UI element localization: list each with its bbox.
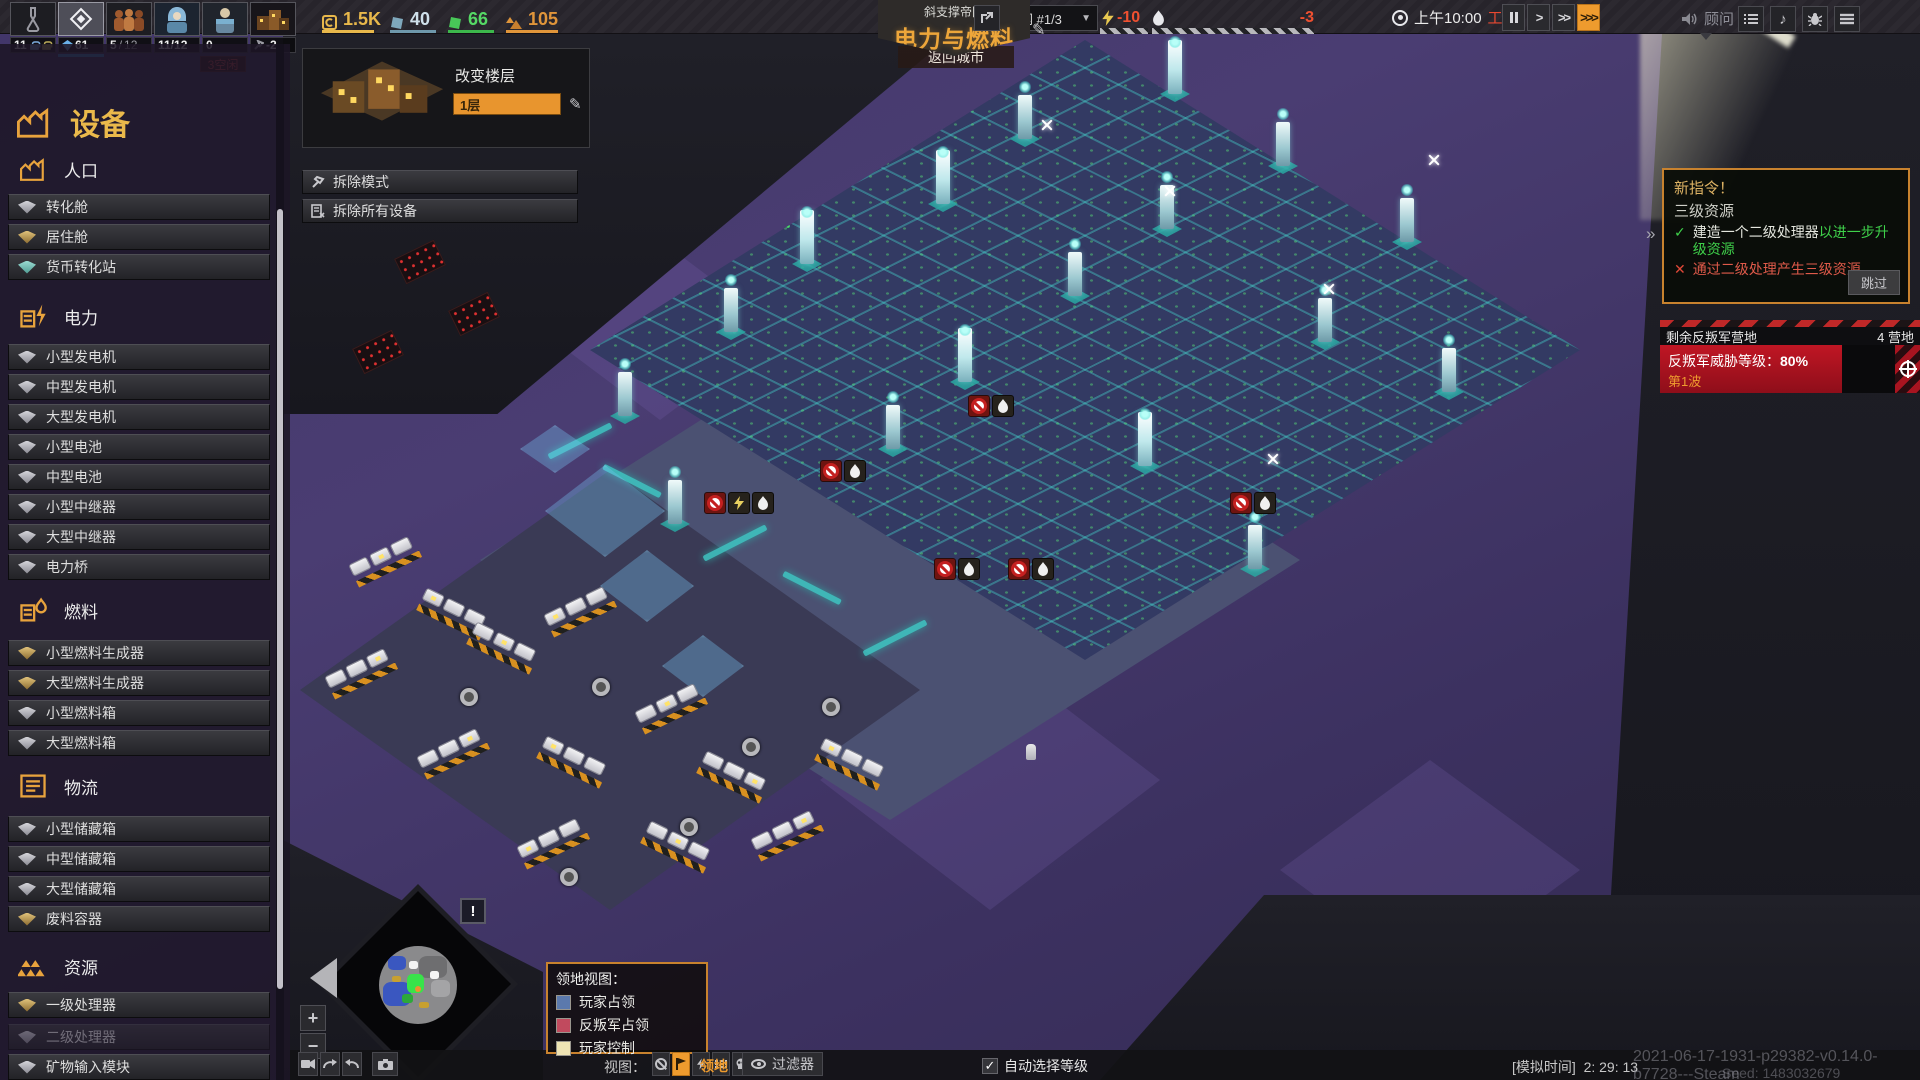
alert-button[interactable]: ! (460, 898, 486, 924)
threat-meter: 反叛军威胁等级：80% 第1波 (1660, 345, 1920, 393)
worker-sprite (1026, 744, 1036, 760)
build-item[interactable]: 中型储藏箱 (8, 846, 270, 872)
power-tower (950, 328, 980, 390)
sim-time: [模拟时间] 2: 29: 13 (1512, 1057, 1638, 1077)
no-power-icon (1008, 558, 1030, 580)
housing-slot[interactable] (154, 2, 200, 36)
directive-subject: 三级资源 (1674, 200, 1898, 221)
fuel-icon (992, 395, 1014, 417)
rebel-camps-title: 剩余反叛军营地 (1666, 327, 1757, 346)
build-item[interactable]: 货币转化站 (8, 254, 270, 280)
equipment-icon (14, 105, 54, 139)
directive-header: 新指令！ (1674, 177, 1898, 198)
resources-icon (18, 955, 48, 979)
build-item[interactable]: 一级处理器 (8, 992, 270, 1018)
legend-title: 领地视图： (556, 969, 698, 989)
section-resources: 资源 (18, 954, 98, 979)
skip-button[interactable]: 跳过 (1848, 270, 1900, 295)
demolish-all-button[interactable]: 拆除所有设备 (302, 199, 578, 223)
green-underline (448, 30, 494, 33)
build-item[interactable]: 小型中继器 (8, 494, 270, 520)
power-deficit-stripes (1100, 28, 1148, 34)
equipment-header: 设备 (14, 100, 130, 144)
speed-2-button[interactable]: >> (1552, 4, 1575, 31)
resource-minerals[interactable]: 105 (506, 4, 558, 30)
auto-select-level[interactable]: ✓ 自动选择等级 (982, 1056, 1088, 1076)
blue-crystal-icon (390, 16, 404, 30)
fuel-warning[interactable] (704, 492, 774, 514)
wheel (460, 688, 478, 706)
zoom-in-button[interactable]: + (300, 1005, 326, 1031)
build-item[interactable]: 转化舱 (8, 194, 270, 220)
fuel-warning[interactable] (820, 460, 866, 482)
advisor-button[interactable]: 顾问 (1682, 8, 1734, 29)
legend-player-claim: 玩家占领 (556, 992, 698, 1012)
speed-3-button[interactable]: >>> (1577, 4, 1600, 31)
rebel-camps-panel: 剩余反叛军营地 4 营地 反叛军威胁等级：80% 第1波 (1660, 320, 1920, 393)
fuel-warning[interactable] (1008, 558, 1054, 580)
power-tower (1060, 242, 1090, 304)
camera-mode-button[interactable] (298, 1052, 318, 1076)
build-item[interactable]: 大型燃料箱 (8, 730, 270, 756)
hooded-figure-icon (164, 5, 190, 33)
rebel-camps-count: 4 营地 (1877, 327, 1914, 346)
chevron-down-icon: ▼ (1081, 13, 1091, 24)
power-tower (610, 362, 640, 424)
selected-building-image (313, 57, 451, 141)
factory-slot[interactable] (250, 2, 296, 36)
power-tower (1434, 338, 1464, 400)
coin-icon (322, 15, 337, 30)
minimap-planet (379, 946, 457, 1024)
research-slot[interactable] (10, 2, 56, 36)
build-item[interactable]: 大型燃料生成器 (8, 670, 270, 696)
clock-widget: 上午10:00 工作 (1392, 7, 1518, 28)
cross-icon: ✕ (1674, 261, 1686, 278)
wheel (742, 738, 760, 756)
edit-floor-icon[interactable]: ✎ (569, 95, 582, 113)
legend-rebel-claim: 反叛军占领 (556, 1015, 698, 1035)
demolish-icon (311, 175, 325, 189)
grid-share-button[interactable] (974, 5, 1000, 31)
build-item[interactable]: 大型中继器 (8, 524, 270, 550)
redo-button[interactable] (320, 1052, 340, 1076)
resource-coins[interactable]: 1.5K (322, 4, 381, 30)
build-item[interactable]: 小型电池 (8, 434, 270, 460)
power-tower (878, 395, 908, 457)
time-label: 上午10:00 (1414, 7, 1482, 28)
population-icon (18, 156, 48, 182)
power-tower (928, 150, 958, 212)
clock-icon (1392, 10, 1408, 26)
build-item[interactable]: 小型发电机 (8, 344, 270, 370)
factory-building-icon (255, 6, 291, 32)
fuel-warning[interactable] (1230, 492, 1276, 514)
build-item[interactable]: 小型燃料生成器 (8, 640, 270, 666)
minerals-underline (506, 30, 558, 33)
fuel-icon (752, 492, 774, 514)
build-item[interactable]: 小型燃料箱 (8, 700, 270, 726)
bug-report-button[interactable] (1802, 6, 1828, 32)
wheel (680, 818, 698, 836)
no-power-icon (1230, 492, 1252, 514)
section-power: 电力 (18, 302, 98, 330)
no-power-icon (934, 558, 956, 580)
build-item[interactable]: 废料容器 (8, 906, 270, 932)
logistics-icon (18, 772, 48, 800)
fuel-icon (1032, 558, 1054, 580)
mineral-pile-icon (506, 17, 522, 30)
power-section-icon (18, 302, 48, 330)
empire-name: 斜支撑帝国 (878, 3, 1030, 20)
target-camp-button[interactable] (1895, 345, 1920, 393)
build-item[interactable]: 大型储藏箱 (8, 876, 270, 902)
population-slot[interactable] (106, 2, 152, 36)
game-screen: 11 61 5/12 11/12 0 -2 3空闲 (0, 0, 1920, 1080)
wheel (822, 698, 840, 716)
coins-underline (322, 30, 374, 33)
advisor-pointer (1700, 33, 1712, 40)
build-item[interactable]: 大型发电机 (8, 404, 270, 430)
demolish-mode-button[interactable]: 拆除模式 (302, 170, 578, 194)
build-item[interactable]: 中型发电机 (8, 374, 270, 400)
crowd-icon (112, 7, 146, 31)
reactor-slot[interactable] (58, 2, 104, 36)
scout-figure-icon (213, 5, 237, 33)
fuel-icon (1152, 10, 1165, 26)
player-control-swatch (556, 1041, 571, 1056)
minimap-pan-left-button[interactable] (310, 958, 337, 998)
fuel-icon (1254, 492, 1276, 514)
speed-1-button[interactable]: > (1527, 4, 1550, 31)
speaker-icon (1682, 12, 1698, 26)
directive-task-done: ✓ 建造一个二级处理器以进一步升级资源 (1674, 224, 1898, 258)
build-item-disabled: 二级处理器 (8, 1024, 270, 1050)
music-button[interactable]: ♪ (1770, 6, 1796, 32)
seed-text: Seed: 1483032679 (1722, 1065, 1840, 1080)
power-tower (1240, 515, 1270, 577)
eye-icon (751, 1059, 766, 1069)
resource-green-crystal[interactable]: 66 (448, 4, 488, 30)
green-crystal-icon (448, 16, 462, 30)
power-tower (1160, 40, 1190, 102)
territory-view-label[interactable]: 领地 (700, 1056, 728, 1076)
filter-button[interactable]: 过滤器 (742, 1052, 823, 1076)
fuel-section-icon (18, 596, 48, 624)
power-tower (1310, 288, 1340, 350)
section-fuel: 燃料 (18, 596, 98, 624)
build-item[interactable]: 居住舱 (8, 224, 270, 250)
player-claim-swatch (556, 995, 571, 1010)
checkbox-checked-icon[interactable]: ✓ (982, 1058, 998, 1074)
section-population: 人口 (18, 156, 98, 182)
sidebar-scrollbar-thumb[interactable] (277, 209, 283, 989)
territory-legend: 领地视图： 玩家占领 反叛军占领 玩家控制 (546, 962, 708, 1054)
fuel-warning[interactable] (968, 395, 1014, 417)
build-sidebar: 设备 人口 转化舱 居住舱 货币转化站 电力 小型发电机 中型发电机 大型发电机… (0, 44, 290, 1080)
resource-blue-crystal[interactable]: 40 (390, 4, 430, 30)
section-logistics: 物流 (18, 772, 98, 800)
power-tower (1268, 112, 1298, 174)
speed-controls: > >> >>> (1502, 4, 1600, 31)
power-tower (792, 210, 822, 272)
power-icon (1102, 10, 1114, 26)
power-tower (716, 278, 746, 340)
power-tower (1130, 412, 1160, 474)
directive-expand-icon[interactable]: » (1646, 224, 1655, 244)
menu-button[interactable] (1834, 6, 1860, 32)
pause-button[interactable] (1502, 4, 1525, 31)
fuel-warning[interactable] (934, 558, 980, 580)
fuel-deficit-stripes (1152, 28, 1314, 34)
power-tower (660, 470, 690, 532)
no-power-icon (820, 460, 842, 482)
floor-selector[interactable]: 1层 (453, 93, 561, 115)
selected-building-panel: 改变楼层 1层 ✎ (302, 48, 590, 148)
view-territory-button[interactable] (672, 1052, 690, 1076)
rebel-claim-swatch (556, 1018, 571, 1033)
build-item[interactable]: 矿物输入模块 (8, 1054, 270, 1080)
build-item[interactable]: 小型储藏箱 (8, 816, 270, 842)
blue-underline (390, 30, 436, 33)
flask-icon (21, 6, 45, 32)
view-label: 视图： (604, 1057, 646, 1077)
edit-city-name-icon[interactable]: ✎ (1032, 20, 1045, 40)
view-none-button[interactable] (652, 1052, 670, 1076)
floor-panel-title: 改变楼层 (455, 65, 515, 86)
crosshair-icon (1900, 361, 1916, 377)
screenshot-button[interactable] (372, 1052, 398, 1076)
fuel-icon (958, 558, 980, 580)
power-tower (1392, 188, 1422, 250)
power-tower (1010, 85, 1040, 147)
directive-panel: 新指令！ 三级资源 ✓ 建造一个二级处理器以进一步升级资源 ✕ 通过二级处理产生… (1662, 168, 1910, 304)
reactor-icon (68, 6, 94, 32)
bolt-icon (728, 492, 750, 514)
wheel (560, 868, 578, 886)
no-power-icon (968, 395, 990, 417)
build-item[interactable]: 电力桥 (8, 554, 270, 580)
check-icon: ✓ (1674, 224, 1686, 258)
undo-button[interactable] (342, 1052, 362, 1076)
no-power-icon (704, 492, 726, 514)
objectives-list-button[interactable] (1738, 6, 1764, 32)
build-item[interactable]: 中型电池 (8, 464, 270, 490)
wheel (592, 678, 610, 696)
wave-label: 第1波 (1668, 371, 1701, 390)
demolish-all-icon (311, 204, 325, 218)
specialists-slot[interactable] (202, 2, 248, 36)
fuel-icon (844, 460, 866, 482)
